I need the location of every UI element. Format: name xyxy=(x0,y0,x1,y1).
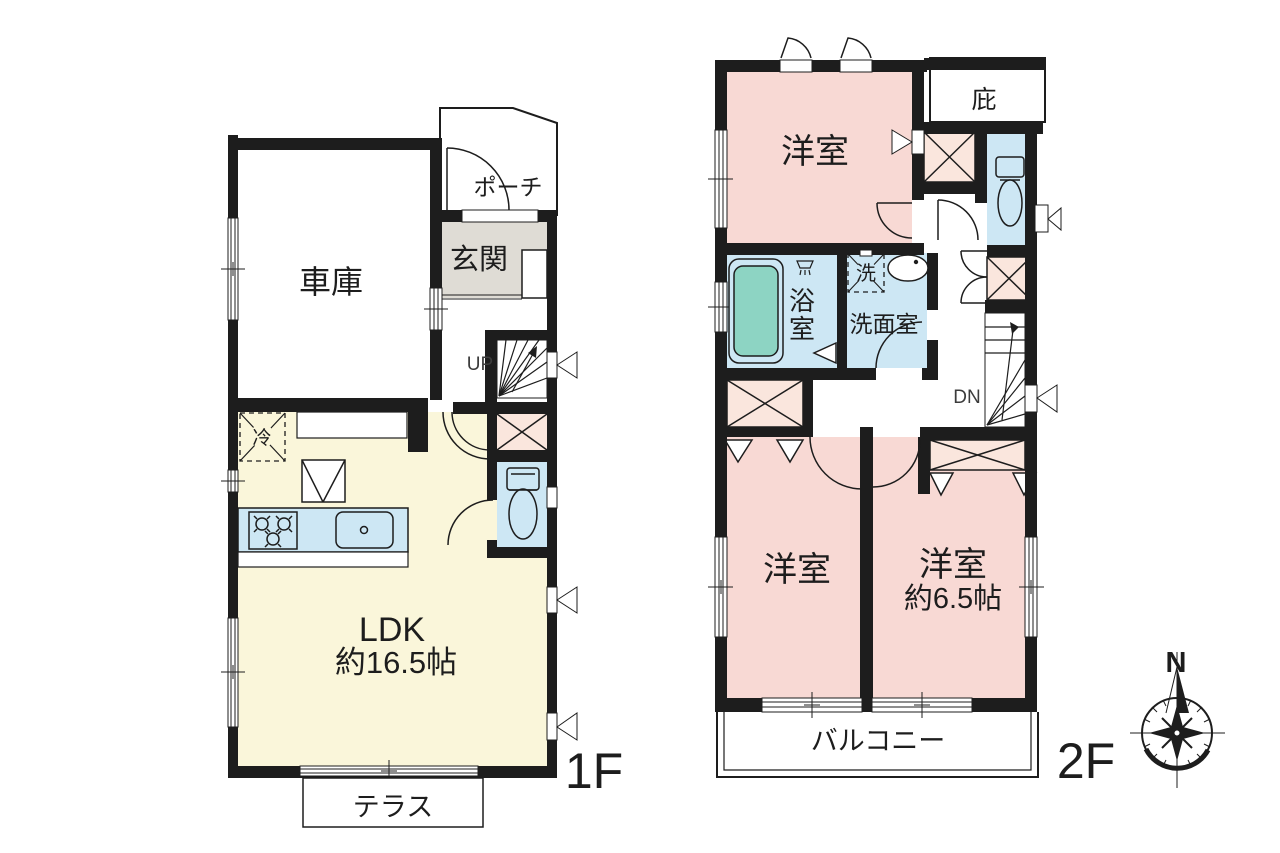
laundry-label: 洗 xyxy=(856,262,876,285)
floor-plan-page: 車庫 ポーチ 玄関 UP LDK 約16.5帖 冷 テラス 1F xyxy=(0,0,1280,853)
room-label-bedroom-north: 洋室 xyxy=(781,133,849,171)
floor-label-2f: 2F xyxy=(1057,733,1115,789)
eaves-label: 庇 xyxy=(971,86,996,114)
kitchen-cabinet xyxy=(297,412,407,438)
compass-rose: N xyxy=(1130,647,1225,788)
washbasin xyxy=(888,255,928,281)
floor-plan-drawing: 車庫 ポーチ 玄関 UP LDK 約16.5帖 冷 テラス 1F xyxy=(0,0,1280,853)
room-label-bedroom-southeast: 洋室 xyxy=(919,546,987,584)
cupboard xyxy=(302,460,345,502)
refrigerator-label: 冷 xyxy=(252,427,271,449)
kitchen-sink xyxy=(336,512,393,548)
floor-label-1f: 1F xyxy=(565,743,623,799)
washbasin-faucet xyxy=(914,260,918,264)
room-label-ldk: LDK xyxy=(359,611,425,649)
balcony-label: バルコニー xyxy=(811,726,945,756)
room-label-garage: 車庫 xyxy=(299,264,363,300)
terrace-label: テラス xyxy=(353,792,433,822)
floor-plan-2f: 洋室 庇 浴 室 洗 洗面室 DN 洋室 洋室 約6.5帖 バルコニー 2F xyxy=(708,38,1115,789)
room-label-bedroom-southeast-size: 約6.5帖 xyxy=(904,582,1002,615)
stairs-2f xyxy=(985,313,1025,427)
bathroom-label-char1: 浴 xyxy=(789,286,815,316)
room-label-ldk-size: 約16.5帖 xyxy=(335,645,457,680)
toilet-fixture-2f xyxy=(996,157,1024,226)
room-label-bedroom-southwest: 洋室 xyxy=(763,551,831,589)
washroom-label: 洗面室 xyxy=(850,311,919,337)
room-label-porch: ポーチ xyxy=(474,174,543,200)
room-label-entrance: 玄関 xyxy=(450,243,508,276)
floor-plan-1f: 車庫 ポーチ 玄関 UP LDK 約16.5帖 冷 テラス 1F xyxy=(221,108,623,827)
bathtub xyxy=(734,266,778,356)
compass-north-label: N xyxy=(1166,647,1187,679)
shoe-cabinet xyxy=(522,250,547,298)
toilet-fixture-1f xyxy=(507,468,539,539)
bathroom-label-char2: 室 xyxy=(789,314,815,344)
stairs-down-label: DN xyxy=(953,387,980,408)
stairs-1f xyxy=(497,340,547,398)
stairs-up-label: UP xyxy=(467,354,493,375)
